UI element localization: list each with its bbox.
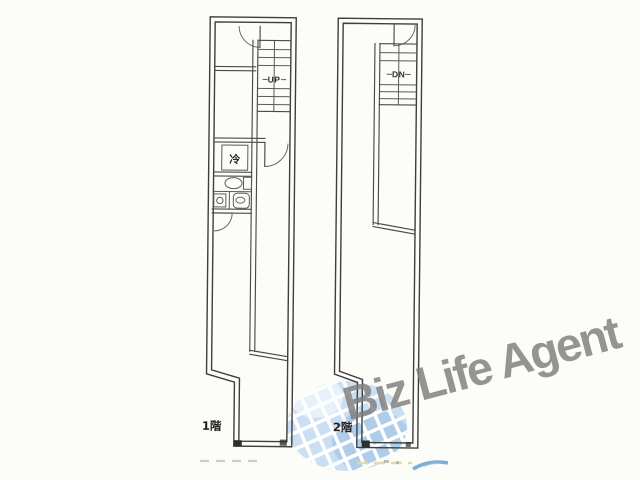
blue-swoosh-mark — [413, 462, 448, 469]
floor-plan-scan: UP 冷 — [0, 0, 640, 480]
bathroom-door-arc — [214, 213, 232, 231]
toilet-bowl — [225, 178, 242, 189]
washbasin — [214, 194, 226, 207]
floor-plan-drawing: UP 冷 — [0, 0, 640, 480]
floor1-kitchen: 冷 — [214, 138, 288, 171]
floor1-entry-door — [239, 26, 260, 47]
floor1-bathroom — [212, 172, 252, 231]
stairs-up-label: UP — [268, 74, 281, 84]
toilet-tank — [243, 177, 251, 189]
floor1-lower-wall — [250, 350, 288, 360]
floor1-staircase-up: UP — [250, 40, 291, 351]
floor1-plan: UP 冷 — [202, 17, 296, 447]
post-mark — [406, 442, 411, 447]
post-mark — [362, 440, 370, 447]
floor1-label: 1階 — [202, 419, 222, 433]
floor2-top-door — [394, 25, 415, 46]
floor2-room-wall — [373, 223, 414, 234]
stairs-down-label: DN — [392, 69, 405, 79]
post-mark — [280, 440, 287, 446]
post-mark — [234, 440, 242, 446]
floor1-hall-wall — [215, 66, 256, 70]
floor2-staircase-down: DN — [373, 44, 417, 225]
fridge-label: 冷 — [229, 152, 240, 166]
